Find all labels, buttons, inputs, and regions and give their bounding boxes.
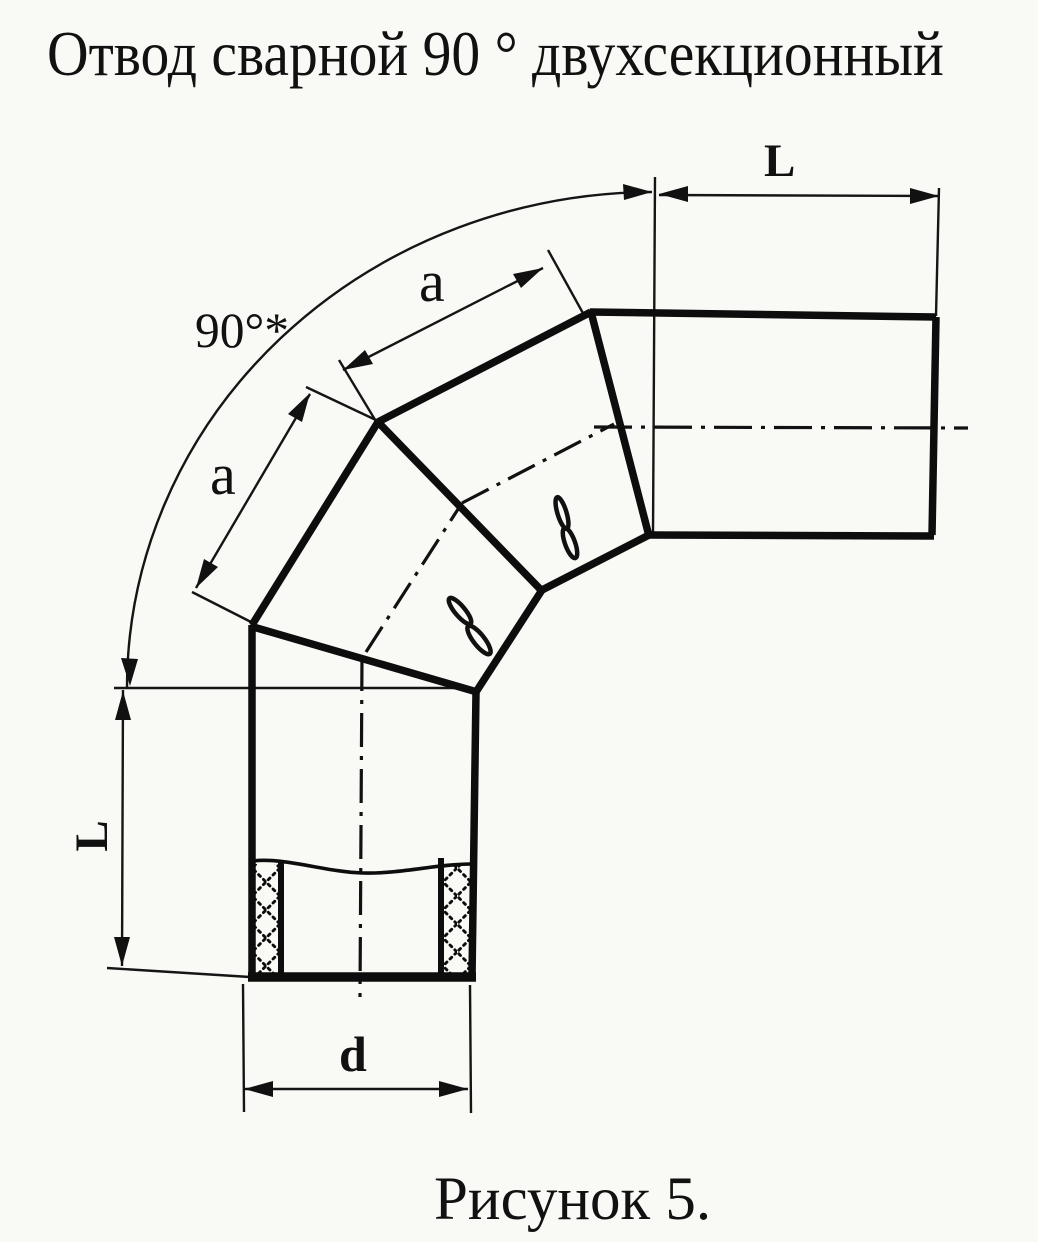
svg-text:L: L	[764, 135, 795, 187]
svg-text:Отвод сварной 90 ° двухсекцион: Отвод сварной 90 ° двухсекционный	[47, 19, 944, 89]
svg-text:L: L	[66, 820, 118, 851]
svg-text:d: d	[339, 1026, 367, 1082]
svg-text:a: a	[210, 442, 236, 507]
svg-text:a: a	[419, 249, 445, 314]
svg-text:90°*: 90°*	[195, 303, 289, 358]
svg-text:Рисунок 5.: Рисунок 5.	[434, 1166, 711, 1233]
